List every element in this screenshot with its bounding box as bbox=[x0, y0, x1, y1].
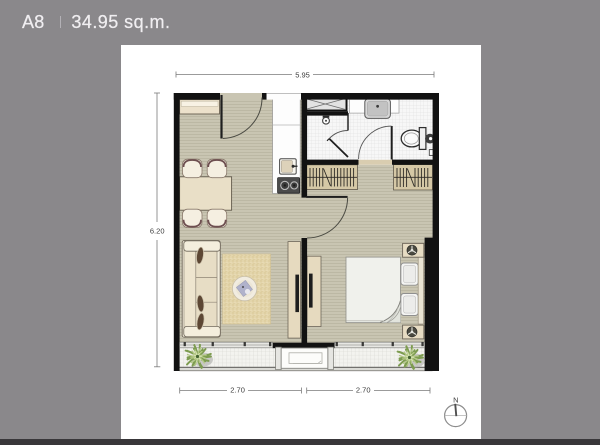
svg-text:2.70: 2.70 bbox=[230, 385, 245, 394]
svg-text:5.95: 5.95 bbox=[295, 70, 310, 79]
svg-text:2.70: 2.70 bbox=[356, 385, 371, 394]
svg-text:N: N bbox=[453, 395, 458, 404]
svg-text:6.20: 6.20 bbox=[150, 227, 165, 236]
